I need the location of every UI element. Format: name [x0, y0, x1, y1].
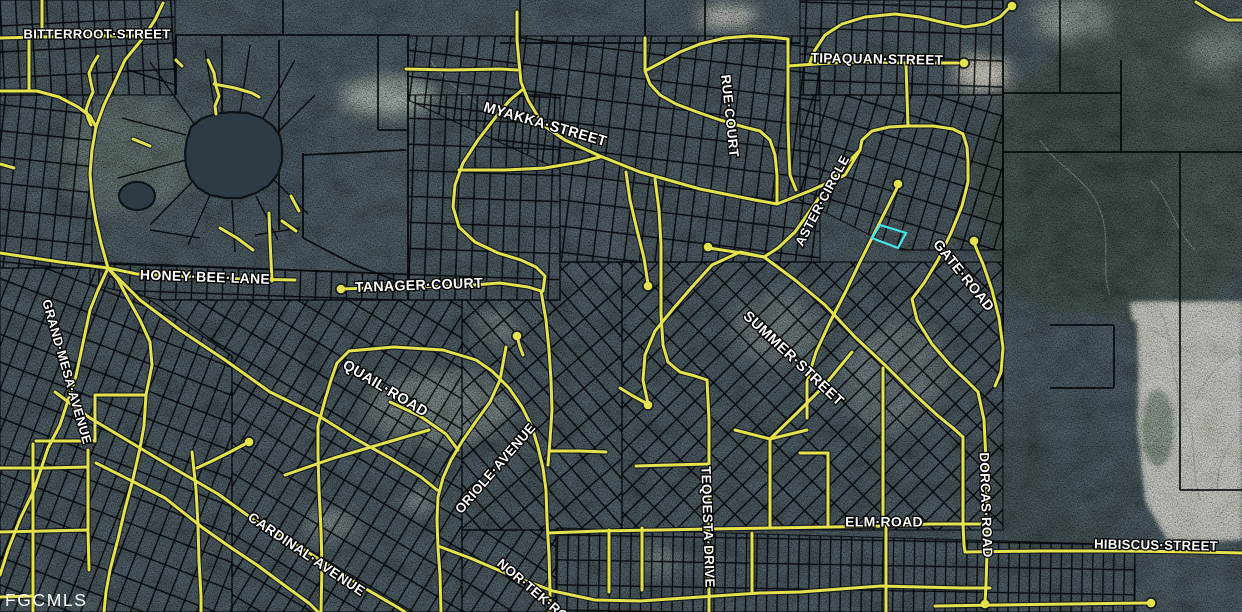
- svg-text:ELM·ROAD: ELM·ROAD: [845, 514, 923, 530]
- svg-text:HIBISCUS·STREET: HIBISCUS·STREET: [1094, 536, 1218, 553]
- svg-text:TIPAQUAN·STREET: TIPAQUAN·STREET: [811, 50, 944, 67]
- svg-text:BITTERROOT·STREET: BITTERROOT·STREET: [23, 26, 170, 41]
- svg-text:FGCMLS: FGCMLS: [5, 590, 88, 610]
